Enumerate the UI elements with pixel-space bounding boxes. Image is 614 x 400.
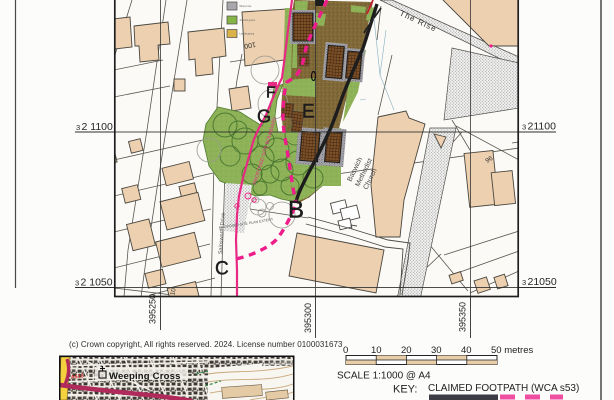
svg-text:395250: 395250	[148, 294, 158, 324]
svg-text:10: 10	[371, 345, 382, 356]
svg-text:KEY:: KEY:	[393, 384, 417, 396]
svg-text:(c) Crown copyright, All right: (c) Crown copyright, All rights reserved…	[69, 340, 343, 349]
svg-text:21100: 21100	[528, 121, 557, 133]
svg-text:40: 40	[461, 345, 472, 356]
svg-text:Landscaping: Landscaping	[240, 32, 255, 36]
svg-text:3: 3	[75, 279, 79, 288]
svg-text:3: 3	[522, 278, 526, 287]
svg-text:395300: 395300	[303, 303, 313, 333]
svg-text:E: E	[302, 102, 315, 123]
svg-text:C: C	[215, 259, 229, 280]
svg-text:30: 30	[431, 345, 442, 356]
svg-text:3: 3	[522, 123, 526, 132]
svg-text:Weeping Cross: Weeping Cross	[109, 371, 181, 382]
svg-text:21050: 21050	[528, 276, 557, 288]
svg-text:SCALE 1:1000 @ A4: SCALE 1:1000 @ A4	[337, 371, 431, 382]
svg-text:3: 3	[76, 123, 80, 132]
svg-text:20: 20	[401, 345, 412, 356]
svg-text:2 1050: 2 1050	[81, 277, 113, 289]
svg-text:Mixed use: Mixed use	[240, 4, 252, 8]
svg-text:395350: 395350	[458, 302, 468, 332]
svg-text:F: F	[266, 85, 276, 102]
svg-text:CLAIMED FOOTPATH (WCA s53): CLAIMED FOOTPATH (WCA s53)	[428, 383, 579, 394]
svg-text:Shared green: Shared green	[240, 18, 256, 22]
svg-text:2 1100: 2 1100	[82, 121, 113, 133]
svg-text:B: B	[288, 197, 304, 224]
svg-text:0: 0	[343, 345, 348, 356]
svg-text:G: G	[257, 107, 271, 127]
svg-text:50 metres: 50 metres	[491, 345, 533, 356]
